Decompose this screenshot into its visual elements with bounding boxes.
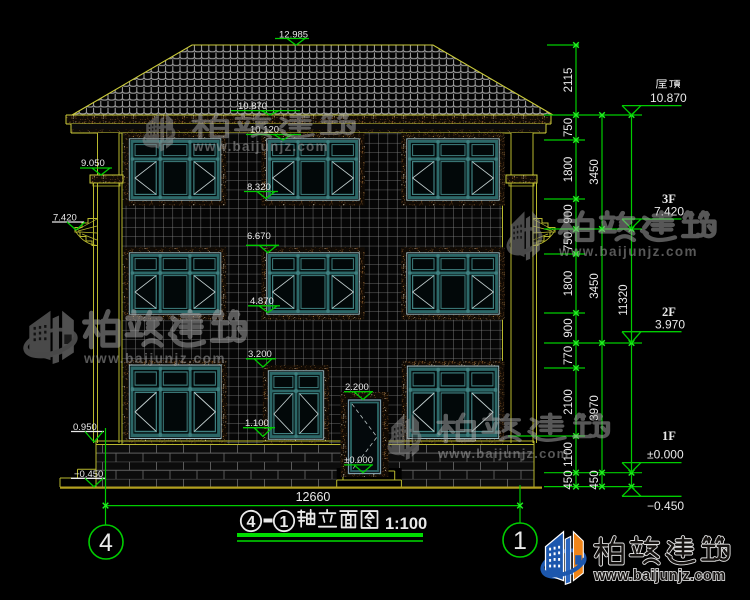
- svg-text:3450: 3450: [589, 159, 601, 185]
- svg-text:www.baijunjz.com: www.baijunjz.com: [558, 244, 698, 259]
- svg-text:1: 1: [280, 514, 289, 531]
- svg-text:770: 770: [563, 346, 575, 365]
- svg-text:4: 4: [99, 529, 113, 557]
- svg-text:−0.450: −0.450: [647, 499, 684, 513]
- svg-text:www.baijunjz.com: www.baijunjz.com: [83, 351, 226, 366]
- svg-text:www.baijunjz.com: www.baijunjz.com: [437, 446, 569, 461]
- svg-text:www.baijunjz.com: www.baijunjz.com: [593, 568, 726, 584]
- svg-text:1800: 1800: [563, 271, 575, 297]
- svg-text:www.baijunjz.com: www.baijunjz.com: [192, 139, 329, 154]
- svg-text:2115: 2115: [563, 68, 575, 93]
- svg-text:1F: 1F: [662, 429, 676, 443]
- svg-text:10.870: 10.870: [650, 91, 687, 105]
- svg-text:3.970: 3.970: [655, 318, 685, 332]
- svg-text:12660: 12660: [296, 490, 331, 504]
- svg-text:2100: 2100: [563, 389, 575, 415]
- svg-text:11320: 11320: [618, 284, 630, 315]
- svg-text:450: 450: [589, 470, 601, 489]
- svg-text:1: 1: [513, 527, 527, 555]
- svg-text:900: 900: [563, 318, 575, 337]
- svg-text:4: 4: [247, 514, 256, 531]
- svg-text:750: 750: [563, 118, 575, 137]
- svg-text:6.670: 6.670: [247, 231, 271, 242]
- svg-text:1800: 1800: [563, 157, 575, 183]
- svg-text:3450: 3450: [589, 273, 601, 299]
- svg-text:1:100: 1:100: [385, 515, 427, 533]
- svg-text:450: 450: [563, 470, 575, 489]
- svg-text:±0.000: ±0.000: [647, 448, 684, 462]
